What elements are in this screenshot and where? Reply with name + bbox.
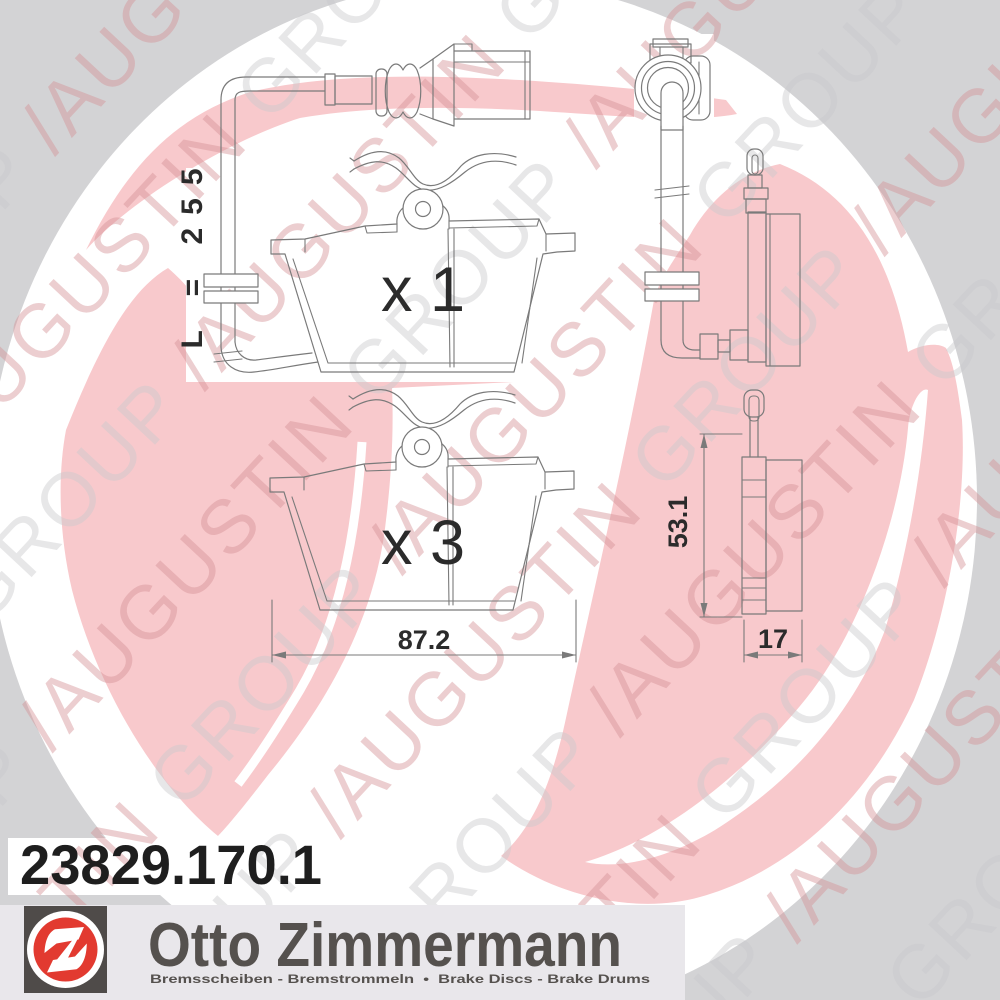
svg-text:17: 17 — [758, 624, 788, 654]
svg-text:Bremsscheiben - Bremstrommeln: Bremsscheiben - Bremstrommeln • Brake Di… — [150, 972, 650, 986]
svg-text:L = 255: L = 255 — [176, 155, 209, 348]
svg-text:87.2: 87.2 — [398, 625, 451, 655]
svg-text:Otto Zimmermann: Otto Zimmermann — [148, 911, 622, 980]
svg-text:x 3: x 3 — [381, 508, 465, 578]
svg-text:x 1: x 1 — [381, 255, 465, 325]
svg-text:23829.170.1: 23829.170.1 — [20, 833, 322, 896]
svg-text:53.1: 53.1 — [663, 496, 693, 549]
